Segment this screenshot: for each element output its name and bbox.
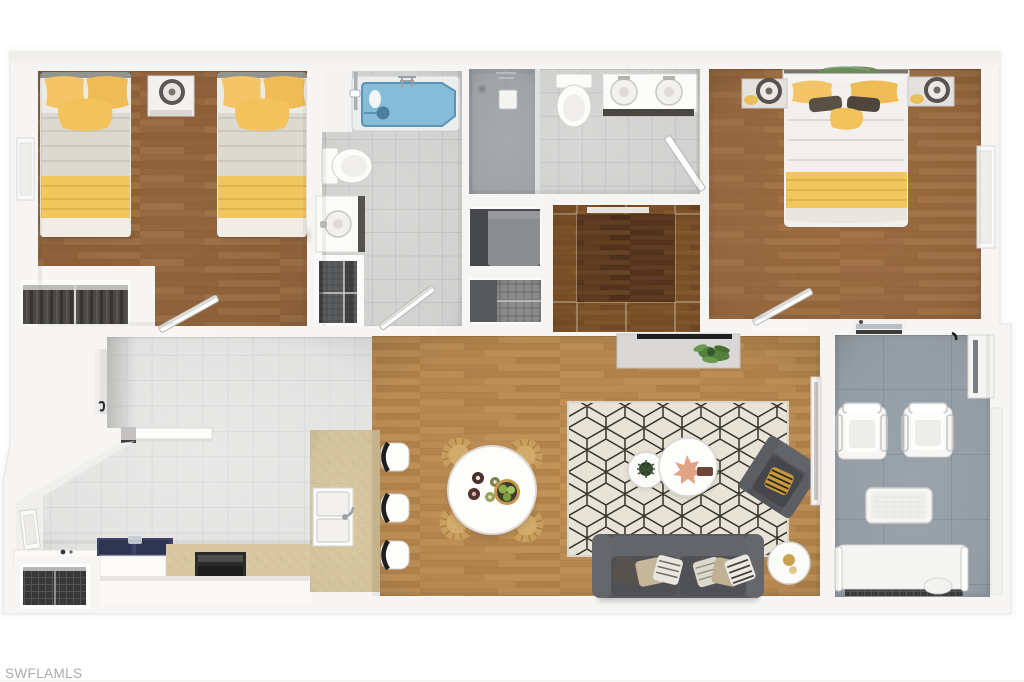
svg-text:SWFLAMLS: SWFLAMLS: [5, 666, 82, 681]
